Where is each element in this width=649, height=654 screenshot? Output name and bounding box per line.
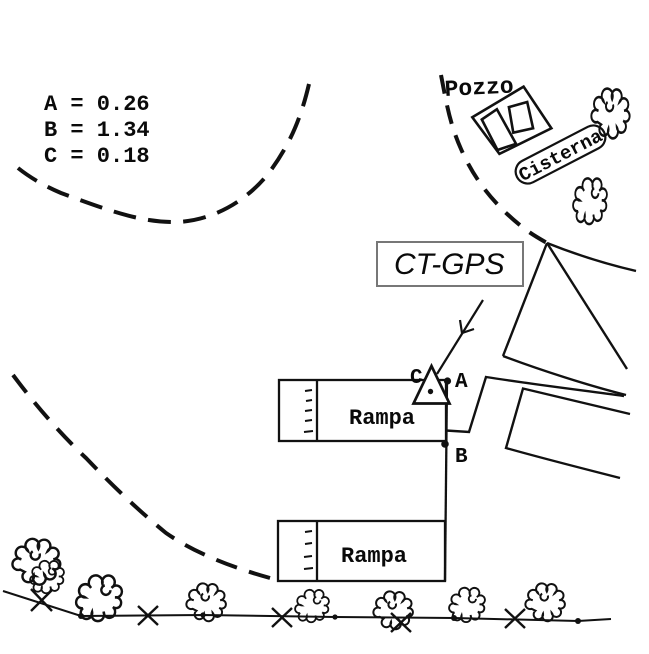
svg-text:Rampa: Rampa <box>341 544 407 569</box>
svg-text:A = 0.26: A = 0.26 <box>44 92 150 117</box>
svg-text:B = 1.34: B = 1.34 <box>44 118 150 143</box>
svg-text:Rampa: Rampa <box>349 406 415 431</box>
svg-text:C = 0.18: C = 0.18 <box>44 144 150 169</box>
svg-text:CT-GPS: CT-GPS <box>394 248 505 281</box>
svg-text:C: C <box>410 367 423 390</box>
svg-text:A: A <box>455 371 468 394</box>
svg-text:B: B <box>455 446 468 469</box>
